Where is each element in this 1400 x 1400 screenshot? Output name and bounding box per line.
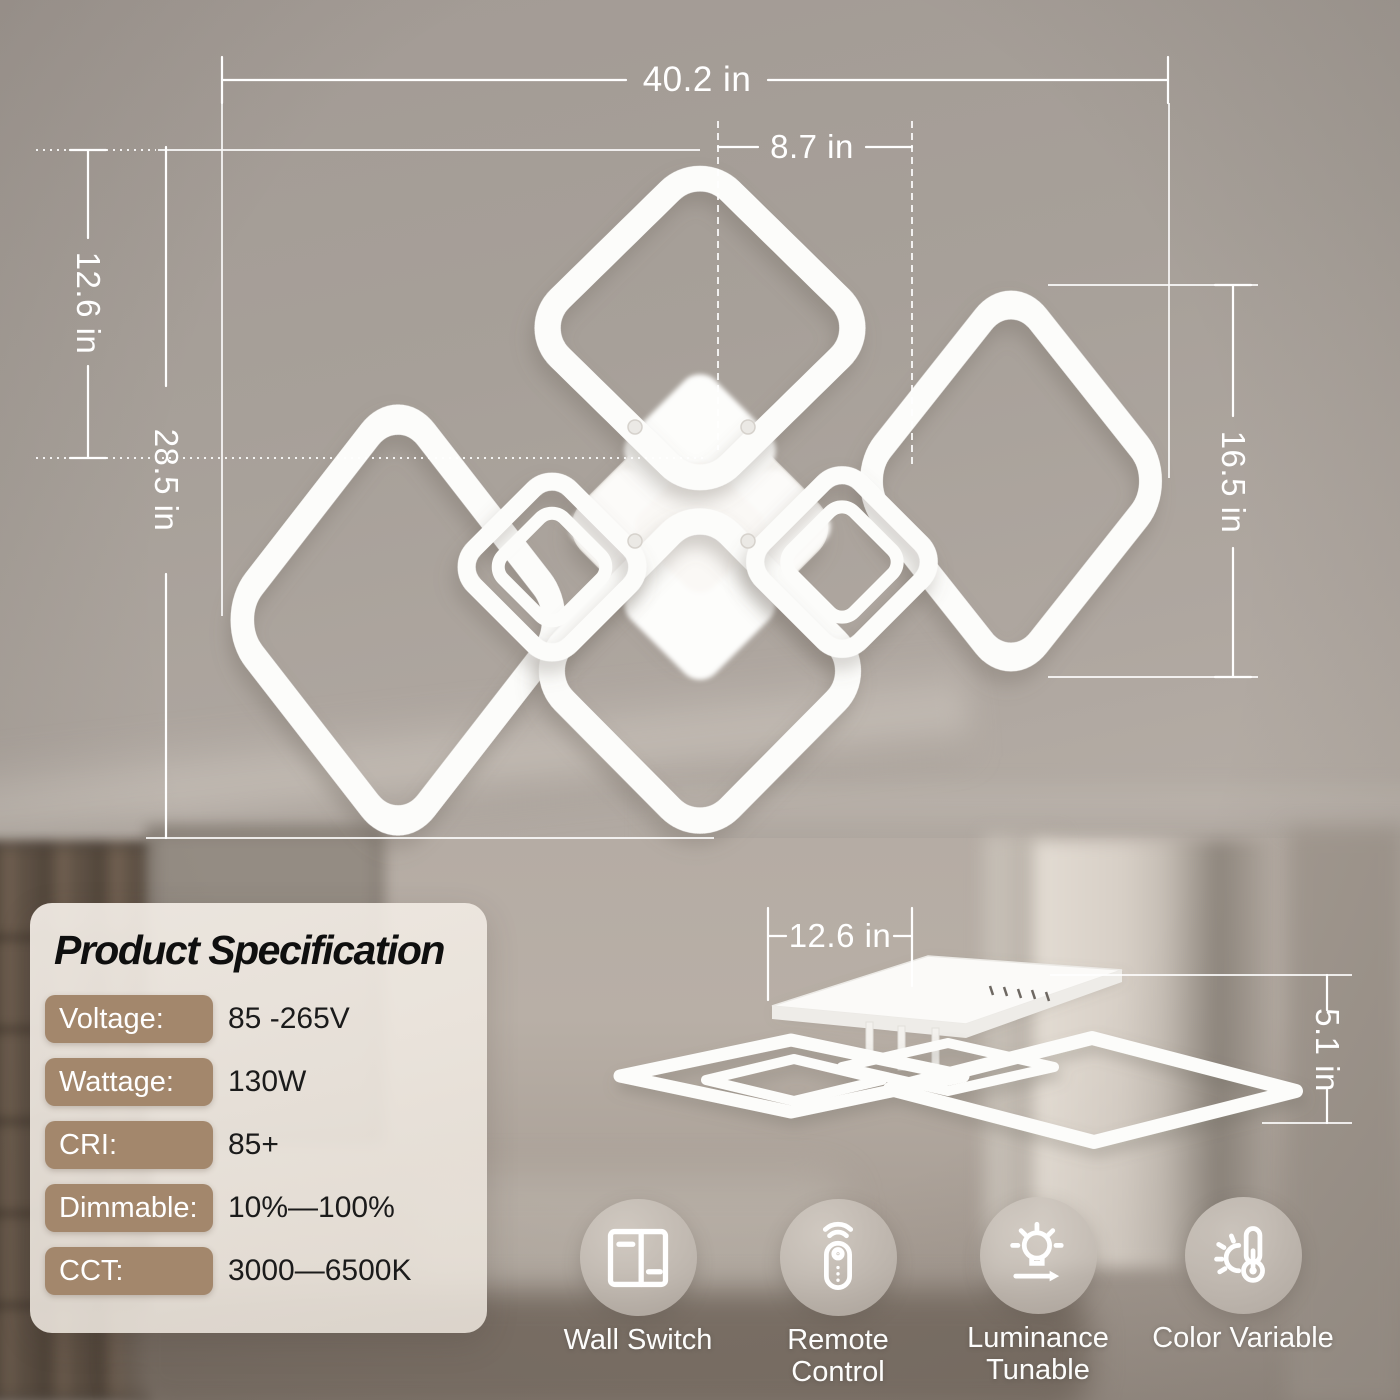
feature-label-line: Tunable bbox=[933, 1355, 1143, 1387]
feature-icon-circle bbox=[1185, 1197, 1302, 1314]
color-variable-icon bbox=[1206, 1219, 1280, 1293]
feature-wall-switch: Wall Switch bbox=[533, 1199, 743, 1357]
luminance-tunable-icon bbox=[1001, 1219, 1075, 1293]
dimension-label-side-ring-height: 16.5 in bbox=[1214, 431, 1252, 534]
feature-label-line: Remote bbox=[733, 1325, 943, 1357]
dimension-label-canopy-width: 12.6 in bbox=[789, 917, 892, 955]
spec-label-voltage: Voltage: bbox=[45, 995, 213, 1043]
spec-value-wattage: 130W bbox=[228, 1058, 306, 1106]
spec-value-voltage: 85 -265V bbox=[228, 995, 350, 1043]
spec-label-wattage: Wattage: bbox=[45, 1058, 213, 1106]
feature-label: Luminance Tunable bbox=[933, 1323, 1143, 1387]
spec-value-cct: 3000—6500K bbox=[228, 1247, 412, 1295]
product-spec-panel: Product Specification Voltage: 85 -265V … bbox=[30, 903, 487, 1333]
feature-label-line: Luminance bbox=[933, 1323, 1143, 1355]
remote-control-icon bbox=[801, 1221, 875, 1295]
feature-label-line: Color Variable bbox=[1138, 1323, 1348, 1355]
dimension-label-overall-height: 28.5 in bbox=[147, 429, 185, 532]
feature-label-line: Control bbox=[733, 1357, 943, 1389]
feature-icon-circle bbox=[980, 1197, 1097, 1314]
product-infographic: 40.2 in 8.7 in 12.6 in 28.5 in 16.5 in 1… bbox=[0, 0, 1400, 1400]
dimension-label-upper-height: 12.6 in bbox=[69, 252, 107, 355]
feature-icon-circle bbox=[580, 1199, 697, 1316]
spec-label-cct: CCT: bbox=[45, 1247, 213, 1295]
feature-luminance-tunable: Luminance Tunable bbox=[933, 1197, 1143, 1387]
feature-remote-control: Remote Control bbox=[733, 1199, 943, 1389]
spec-label-dimmable: Dimmable: bbox=[45, 1184, 213, 1232]
feature-label: Remote Control bbox=[733, 1325, 943, 1389]
spec-panel-title: Product Specification bbox=[54, 927, 474, 974]
dimension-label-center-width: 8.7 in bbox=[770, 128, 854, 166]
feature-label: Wall Switch bbox=[533, 1325, 743, 1357]
feature-label-line: Wall Switch bbox=[533, 1325, 743, 1357]
spec-value-dimmable: 10%—100% bbox=[228, 1184, 395, 1232]
spec-label-cri: CRI: bbox=[45, 1121, 213, 1169]
feature-label: Color Variable bbox=[1138, 1323, 1348, 1355]
dimension-label-fixture-height: 5.1 in bbox=[1308, 1008, 1346, 1092]
dimension-label-overall-width: 40.2 in bbox=[643, 60, 752, 100]
feature-icon-circle bbox=[780, 1199, 897, 1316]
feature-color-variable: Color Variable bbox=[1138, 1197, 1348, 1355]
wall-switch-icon bbox=[601, 1221, 675, 1295]
spec-value-cri: 85+ bbox=[228, 1121, 279, 1169]
